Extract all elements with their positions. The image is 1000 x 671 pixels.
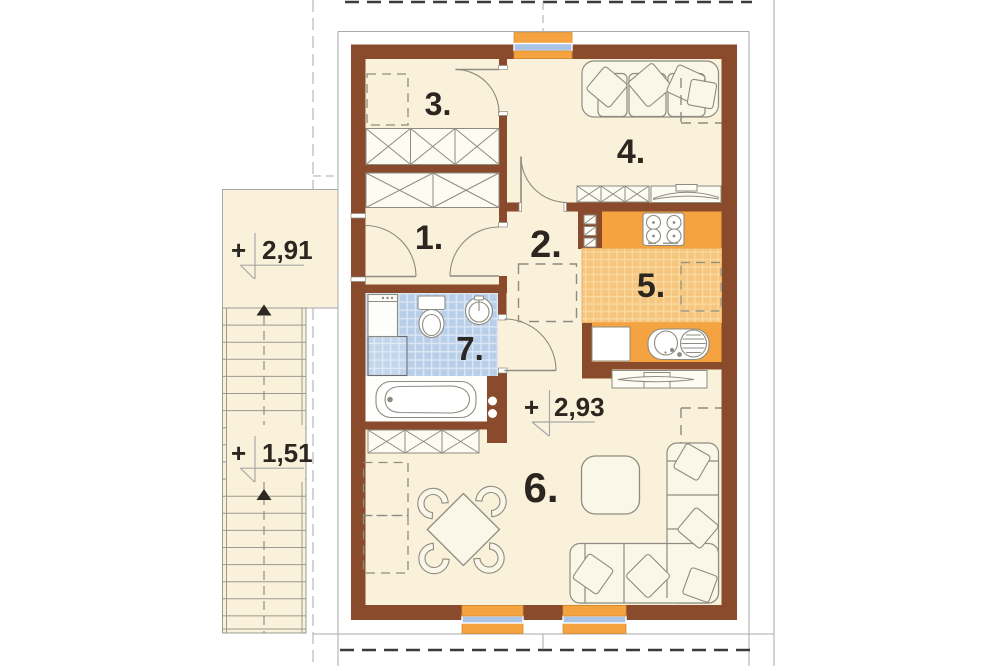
svg-text:1.: 1.	[415, 219, 443, 257]
svg-text:+: +	[231, 235, 246, 265]
svg-text:2,93: 2,93	[554, 392, 605, 422]
svg-text:+: +	[231, 438, 246, 468]
svg-text:2.: 2.	[530, 224, 562, 266]
svg-text:+: +	[524, 392, 539, 422]
svg-text:2,91: 2,91	[262, 235, 313, 265]
svg-text:7.: 7.	[456, 330, 484, 367]
svg-text:6.: 6.	[523, 464, 558, 511]
svg-text:3.: 3.	[425, 86, 452, 122]
svg-text:4.: 4.	[617, 133, 645, 171]
svg-text:1,51: 1,51	[262, 438, 313, 468]
svg-text:5.: 5.	[637, 267, 665, 305]
